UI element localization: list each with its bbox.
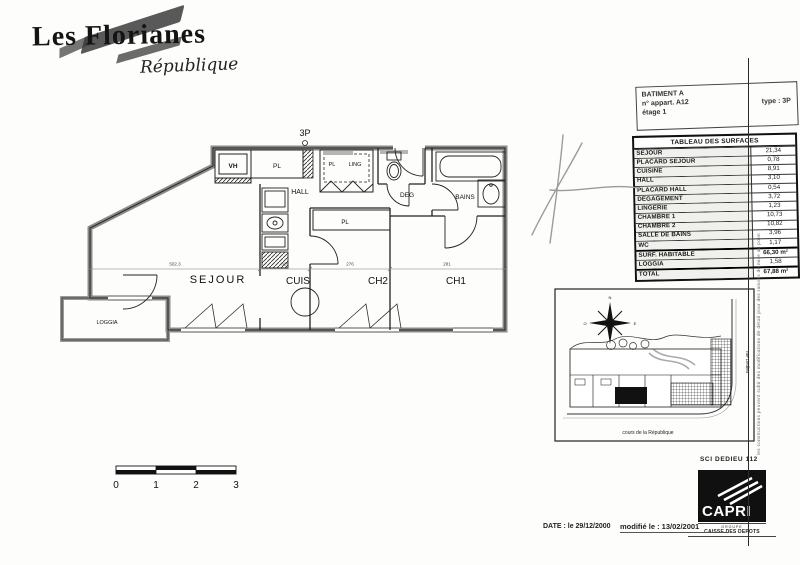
kitchen-sink-icon [262, 188, 288, 212]
fixtures [262, 152, 505, 316]
buildings [570, 335, 731, 407]
surface-table: TABLEAU DES SURFACES SEJOUR21,34 PLACARD… [632, 133, 800, 282]
street-label-bottom: cours de la République [622, 430, 673, 436]
row-value: 10,73 [753, 211, 797, 220]
logo-title: Les Florianes [32, 18, 207, 53]
row-value: 8,91 [752, 165, 796, 174]
room-label-type: 3P [299, 128, 310, 138]
dim-label: 281 [443, 262, 451, 267]
apartment-info-box: BATIMENT A n° appart. A12 étage 1 type :… [635, 81, 798, 131]
logo: Les Florianes République [28, 12, 278, 82]
room-label-hall: HALL [291, 189, 309, 196]
room-label-ch1: CH1 [446, 276, 466, 287]
apartment-type: type : 3P [762, 96, 791, 106]
row-value: 21,34 [751, 147, 795, 156]
sheet-edge-line [748, 58, 749, 546]
capri-logo: CAPRI [698, 470, 766, 522]
floor-plan-drawing: 502.3 325 276 281 3P VH PL PL LING HALL … [55, 126, 520, 366]
dimension-lines: 502.3 325 276 281 [88, 262, 507, 272]
room-label-bains: BAINS [455, 194, 475, 201]
capri-wordmark: CAPRI [702, 503, 751, 520]
date-label: DATE : le 29/12/2000 [543, 523, 611, 530]
room-label-vh: VH [228, 163, 237, 170]
row-value: 0,54 [752, 183, 796, 192]
scanned-floorplan-sheet: Les Florianes République BATIMENT A n° a… [0, 0, 800, 565]
interior-walls [260, 148, 505, 330]
side-disclaimer-note: les constructions peuvent subir des modi… [756, 225, 761, 455]
sci-label: SCI DEDIEU 112 [700, 456, 758, 463]
room-label-pl: PL [329, 162, 336, 168]
dim-label: 502.3 [169, 262, 181, 267]
room-label-degagement: DEG [400, 192, 414, 199]
tree-icon [619, 339, 627, 347]
dim-label: 276 [346, 262, 354, 267]
scale-bar: 0 1 2 3 [108, 458, 258, 498]
room-label-ch2: CH2 [368, 276, 388, 287]
north-point-icon [303, 141, 308, 146]
tree-icon [641, 340, 649, 348]
room-label-pl: PL [273, 163, 281, 170]
row-label: TOTAL [637, 269, 754, 280]
room-label-cuisine: CUIS [286, 276, 310, 287]
room-label-loggia: LOGGIA [96, 320, 117, 326]
compass-e: E [634, 321, 637, 326]
tree-icon [630, 343, 637, 350]
room-label-pl: PL [341, 220, 349, 226]
window-swing-icon [185, 304, 401, 328]
site-plan: N S E O cours de la République rue Dedie… [553, 287, 758, 447]
kitchen-unit-icon [262, 234, 288, 250]
compass-rose-icon: N S E O [583, 295, 636, 352]
room-label-lingerie: LING [349, 162, 362, 168]
row-value: 0,78 [751, 156, 795, 165]
outer-walls [62, 148, 505, 340]
scale-tick: 0 [113, 480, 119, 491]
row-value: 3,72 [752, 193, 796, 202]
modified-date-label: modifié le : 13/02/2001 [620, 522, 729, 533]
handwritten-mark [518, 125, 653, 270]
compass-n: N [609, 295, 612, 300]
compass-o: O [583, 321, 586, 326]
scale-tick: 2 [193, 480, 199, 491]
logo-subtitle: République [140, 54, 239, 77]
dim-label: 325 [281, 262, 289, 267]
scale-tick: 3 [233, 480, 239, 491]
round-table-icon [291, 288, 319, 316]
scale-tick: 1 [153, 480, 159, 491]
room-label-sejour: SEJOUR [190, 274, 247, 286]
closets [215, 150, 408, 230]
row-value: 1,23 [752, 202, 796, 211]
row-value: 3,10 [752, 174, 796, 183]
highlighted-building-block [615, 387, 647, 404]
